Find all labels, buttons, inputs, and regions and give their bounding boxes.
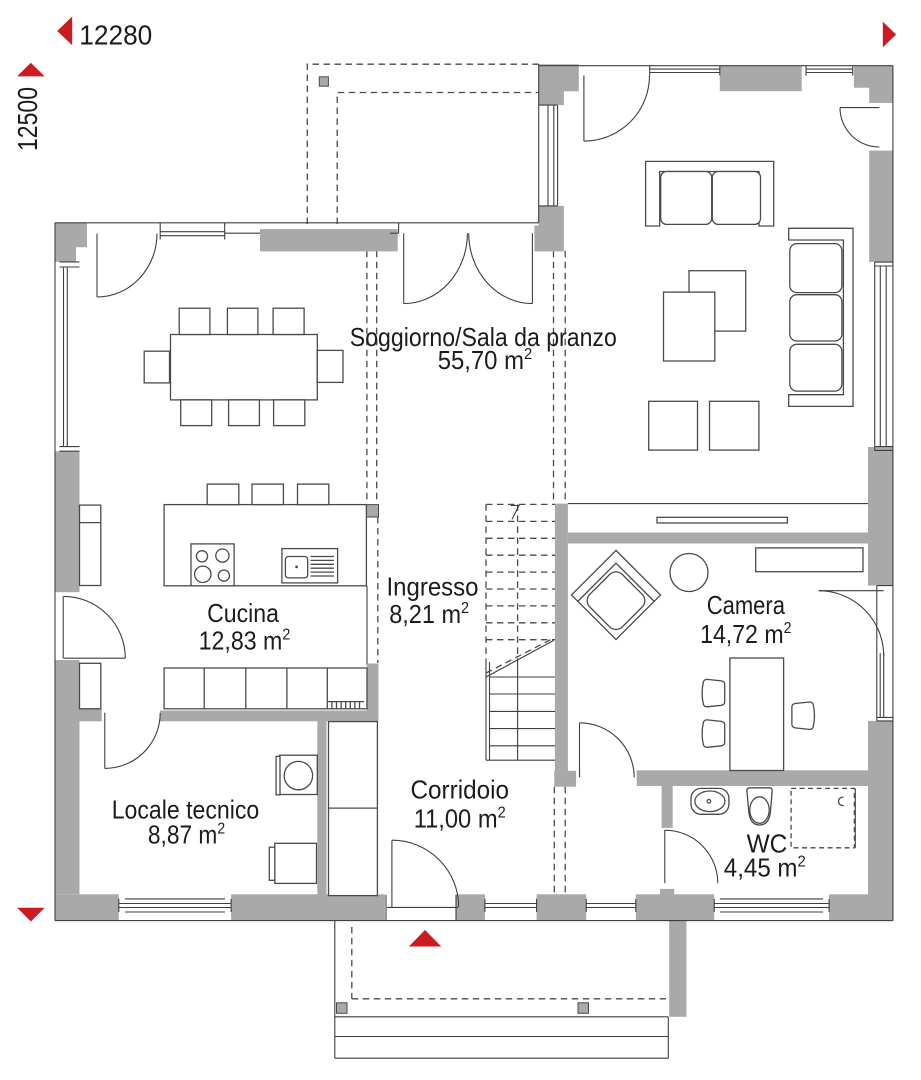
svg-text:Ingresso: Ingresso (387, 572, 479, 602)
svg-text:Corridoio: Corridoio (411, 774, 510, 804)
svg-text:12500: 12500 (12, 87, 43, 151)
svg-text:8,87 m2: 8,87 m2 (148, 820, 225, 850)
svg-text:55,70 m2: 55,70 m2 (438, 345, 533, 375)
svg-text:11,00 m2: 11,00 m2 (414, 803, 506, 833)
svg-text:Cucina: Cucina (207, 598, 279, 628)
svg-text:14,72 m2: 14,72 m2 (700, 619, 791, 649)
svg-text:8,21 m2: 8,21 m2 (389, 599, 469, 629)
svg-text:12280: 12280 (79, 20, 152, 51)
svg-text:4,45 m2: 4,45 m2 (724, 853, 806, 883)
svg-text:Camera: Camera (707, 590, 786, 620)
svg-text:12,83 m2: 12,83 m2 (199, 626, 291, 656)
